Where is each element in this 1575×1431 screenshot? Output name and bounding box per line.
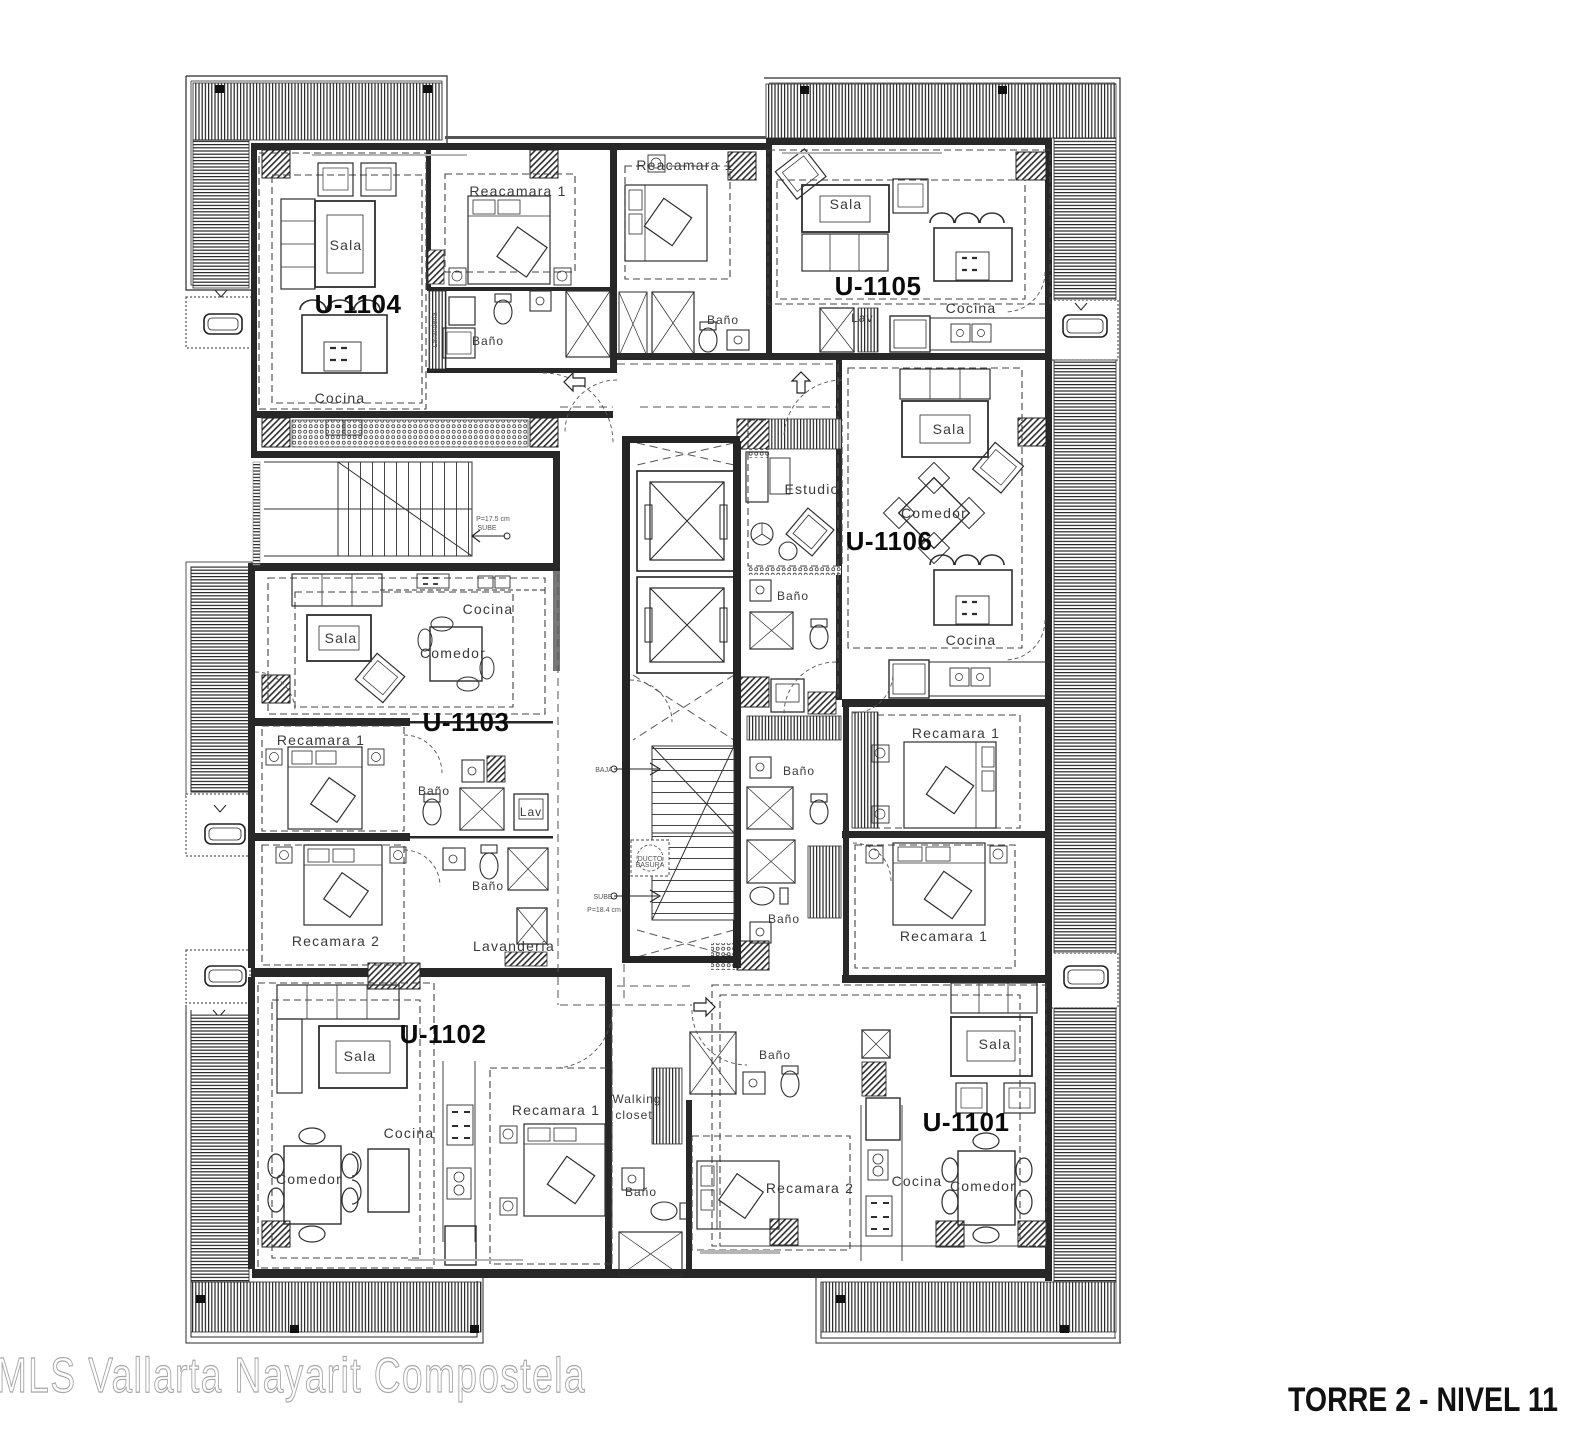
svg-text:TORRE 2 - NIVEL 11: TORRE 2 - NIVEL 11 <box>1288 1381 1558 1419</box>
svg-text:Comedor: Comedor <box>420 645 486 661</box>
svg-text:Cocina: Cocina <box>463 601 514 617</box>
svg-text:Baño: Baño <box>759 1048 791 1062</box>
svg-text:Sala: Sala <box>933 421 966 437</box>
svg-text:Recamara 2: Recamara 2 <box>292 933 380 949</box>
svg-text:P=17.5 cm: P=17.5 cm <box>476 516 510 523</box>
svg-text:Recamara 1: Recamara 1 <box>912 725 1000 741</box>
svg-text:SUBE: SUBE <box>477 525 496 532</box>
svg-text:Walking: Walking <box>612 1092 661 1106</box>
svg-text:SUBE: SUBE <box>593 894 612 901</box>
svg-text:U-1101: U-1101 <box>923 1107 1010 1137</box>
svg-text:Reacamara 1: Reacamara 1 <box>636 157 733 173</box>
svg-text:Recamara 1: Recamara 1 <box>512 1102 600 1118</box>
svg-text:Baño: Baño <box>418 784 450 798</box>
svg-text:Sala: Sala <box>979 1036 1012 1052</box>
svg-text:U-1104: U-1104 <box>315 289 402 319</box>
svg-text:Cocina: Cocina <box>892 1173 943 1189</box>
svg-text:Lavandería: Lavandería <box>432 312 439 347</box>
svg-text:Baño: Baño <box>472 879 504 893</box>
svg-text:Recamara 1: Recamara 1 <box>900 928 988 944</box>
svg-text:U-1102: U-1102 <box>400 1019 487 1049</box>
svg-text:Sala: Sala <box>344 1048 377 1064</box>
svg-text:Baño: Baño <box>768 912 800 926</box>
svg-text:Cocina: Cocina <box>384 1125 435 1141</box>
svg-text:MLS Vallarta Nayarit Compostel: MLS Vallarta Nayarit Compostela <box>0 1349 586 1403</box>
svg-text:Lavandería: Lavandería <box>473 938 555 954</box>
svg-text:Recamara 2: Recamara 2 <box>766 1180 854 1196</box>
svg-text:BASURA: BASURA <box>636 862 665 869</box>
svg-text:U-1106: U-1106 <box>846 526 933 556</box>
svg-text:Baño: Baño <box>707 313 739 327</box>
svg-text:Cocina: Cocina <box>946 632 997 648</box>
svg-text:Cocina: Cocina <box>315 390 366 406</box>
svg-text:Baño: Baño <box>625 1185 657 1199</box>
svg-text:Comedor: Comedor <box>276 1171 342 1187</box>
svg-text:Baño: Baño <box>777 589 809 603</box>
svg-text:closet: closet <box>615 1108 652 1122</box>
svg-text:Recamara 1: Recamara 1 <box>277 732 365 748</box>
svg-text:Sala: Sala <box>330 237 363 253</box>
svg-text:Comedor: Comedor <box>901 505 967 521</box>
svg-text:Comedor: Comedor <box>950 1178 1016 1194</box>
svg-text:Estudio: Estudio <box>784 481 839 497</box>
svg-text:Sala: Sala <box>830 196 863 212</box>
svg-text:Lav.: Lav. <box>851 311 877 325</box>
svg-text:Cocina: Cocina <box>946 300 997 316</box>
svg-text:Baño: Baño <box>783 764 815 778</box>
svg-text:U-1103: U-1103 <box>423 707 510 737</box>
svg-text:U-1105: U-1105 <box>835 271 922 301</box>
svg-text:Baño: Baño <box>472 334 504 348</box>
svg-text:BAJA: BAJA <box>595 767 613 774</box>
svg-text:P=18.4 cm: P=18.4 cm <box>587 907 621 914</box>
svg-text:Lav: Lav <box>520 805 542 819</box>
svg-text:Sala: Sala <box>325 630 358 646</box>
svg-text:Reacamara 1: Reacamara 1 <box>469 183 566 199</box>
